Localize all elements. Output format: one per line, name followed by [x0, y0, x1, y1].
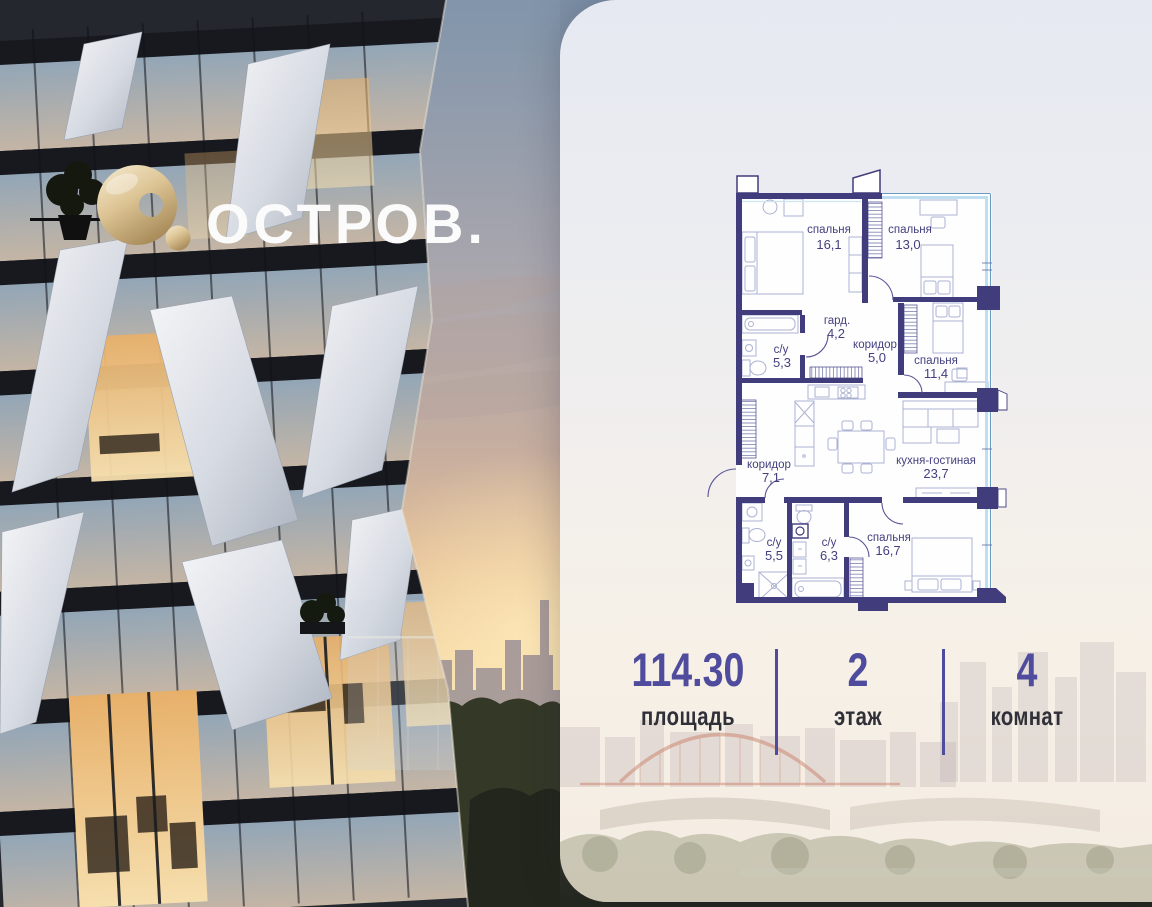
stadium-roof: [600, 798, 830, 831]
stat-divider: [775, 649, 778, 755]
floor-label: этаж: [805, 702, 911, 730]
room-area: 5,5: [765, 548, 783, 563]
brand-mark-dot-icon: [166, 226, 191, 251]
room-area: 16,7: [875, 543, 900, 558]
room-area: 5,0: [868, 350, 886, 365]
rooms-value: 4: [970, 645, 1084, 695]
brand-wordmark: ОСТРОВ.: [206, 192, 487, 255]
room-area: 7,1: [762, 470, 780, 485]
room-label: спальня: [888, 224, 932, 236]
room-area: 23,7: [923, 466, 948, 481]
room-area: 13,0: [895, 237, 920, 252]
stat-divider: [942, 649, 945, 755]
stadium-roof-2: [850, 798, 1100, 832]
area-value: 114.30: [624, 645, 752, 695]
trees-front: [465, 788, 560, 907]
stat-floor: 2 этаж: [790, 645, 926, 730]
room-label: спальня: [807, 224, 851, 236]
room-area: 5,3: [773, 355, 791, 370]
room-area: 4,2: [827, 326, 845, 341]
room-area: 16,1: [816, 237, 841, 252]
brand-logo: ОСТРОВ.: [90, 150, 520, 270]
building-photo: [0, 0, 560, 907]
listing-screenshot: ОСТРОВ.: [0, 0, 1152, 907]
floor-plan: спальня 16,1 спальня 13,0 с/у 5,3 гард. …: [700, 160, 1020, 630]
balcony-a: [737, 176, 758, 193]
stat-rooms: 4 комнат: [956, 645, 1098, 730]
river: [740, 868, 1152, 877]
room-area: 11,4: [924, 366, 948, 381]
rooms-label: комнат: [972, 702, 1083, 730]
room-area: 6,3: [820, 548, 838, 563]
tree-band: [560, 830, 1152, 902]
floor-value: 2: [804, 645, 913, 695]
area-label: площадь: [626, 702, 751, 730]
balcony-b: [853, 170, 880, 193]
apartment-card[interactable]: спальня 16,1 спальня 13,0 с/у 5,3 гард. …: [560, 0, 1152, 902]
stat-area: 114.30 площадь: [608, 645, 768, 730]
stats-row: 114.30 площадь 2 этаж 4 комнат: [560, 645, 1152, 775]
